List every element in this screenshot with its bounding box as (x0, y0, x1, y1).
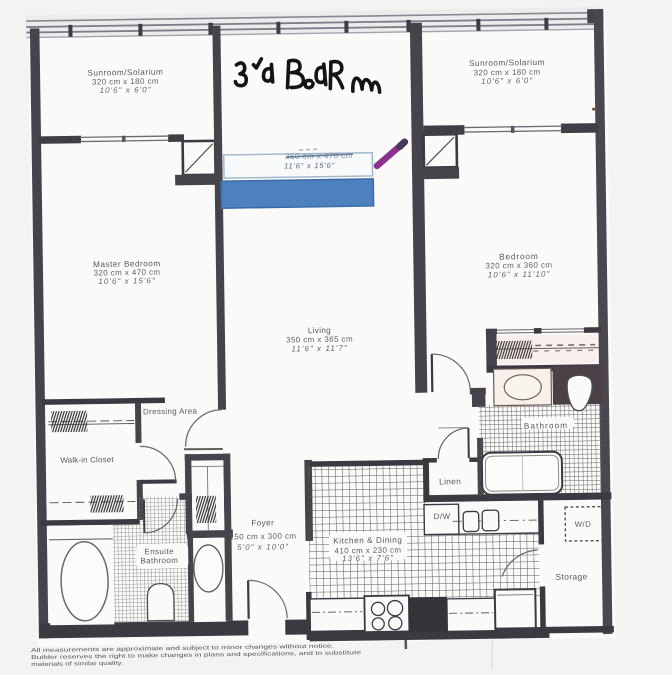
svg-text:10'6" x 6'0": 10'6" x 6'0" (100, 85, 152, 95)
svg-text:10'6" x 15'6": 10'6" x 15'6" (98, 276, 156, 286)
svg-text:13'6" x 7'6": 13'6" x 7'6" (342, 553, 394, 563)
svg-text:11'6" x 11'7": 11'6" x 11'7" (291, 344, 348, 354)
svg-text:Walk-in Closet: Walk-in Closet (60, 455, 114, 465)
svg-text:Foyer: Foyer (251, 518, 274, 527)
svg-text:11'6" x 15'6": 11'6" x 15'6" (284, 161, 335, 171)
svg-text:Linen: Linen (439, 476, 461, 486)
svg-text:150 cm x 300 cm: 150 cm x 300 cm (229, 532, 296, 542)
svg-text:5'0" x 10'0": 5'0" x 10'0" (237, 542, 289, 552)
svg-text:10'6" x 6'0": 10'6" x 6'0" (481, 76, 533, 86)
svg-text:Living: Living (308, 326, 331, 335)
svg-text:Sunroom/Solarium: Sunroom/Solarium (469, 58, 545, 68)
svg-text:Bathroom: Bathroom (524, 421, 568, 431)
svg-text:Dressing Area: Dressing Area (143, 407, 198, 417)
svg-text:Ensuite: Ensuite (144, 547, 174, 556)
svg-text:10'6" x 11'10": 10'6" x 11'10" (488, 270, 551, 280)
svg-text:Kitchen & Dining: Kitchen & Dining (333, 536, 402, 546)
svg-text:Storage: Storage (555, 571, 587, 581)
svg-text:materials of similar quality.: materials of similar quality. (31, 661, 124, 668)
svg-text:D/W: D/W (434, 512, 451, 521)
svg-text:Bathroom: Bathroom (140, 556, 178, 566)
svg-text:W/D: W/D (575, 520, 592, 529)
